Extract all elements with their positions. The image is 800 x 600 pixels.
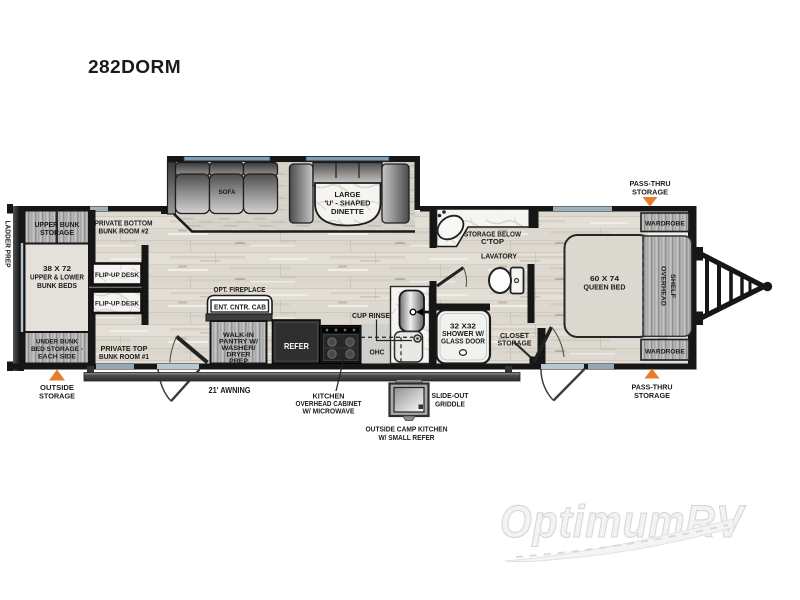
svg-text:UNDER BUNK: UNDER BUNK — [36, 339, 78, 346]
svg-text:SHELF: SHELF — [669, 274, 676, 298]
svg-text:QUEEN BED: QUEEN BED — [584, 283, 627, 292]
svg-text:STORAGE: STORAGE — [634, 391, 670, 400]
svg-text:GLASS DOOR: GLASS DOOR — [441, 339, 485, 346]
svg-text:DINETTE: DINETTE — [331, 207, 364, 216]
svg-text:STORAGE: STORAGE — [39, 392, 75, 401]
svg-text:BUNK ROOM #2: BUNK ROOM #2 — [99, 227, 149, 236]
svg-text:OptimumRV: OptimumRV — [500, 496, 747, 547]
svg-text:GRIDDLE: GRIDDLE — [435, 400, 465, 409]
svg-text:EACH SIDE: EACH SIDE — [38, 354, 76, 361]
svg-text:BUNK ROOM #1: BUNK ROOM #1 — [99, 352, 149, 361]
svg-text:SHOWER W/: SHOWER W/ — [442, 331, 484, 338]
svg-text:CUP RINSE: CUP RINSE — [352, 313, 390, 320]
svg-text:BED STORAGE -: BED STORAGE - — [31, 346, 83, 353]
svg-text:WARDROBE: WARDROBE — [645, 349, 685, 356]
svg-text:OVERHEAD: OVERHEAD — [660, 266, 667, 306]
svg-text:STORAGE: STORAGE — [40, 230, 74, 237]
svg-text:SOFA: SOFA — [219, 189, 236, 196]
svg-text:LADDER PREP: LADDER PREP — [4, 221, 13, 268]
svg-text:32 X32: 32 X32 — [450, 324, 476, 331]
svg-text:W/ SMALL REFER: W/ SMALL REFER — [379, 433, 435, 442]
svg-text:CLOSET: CLOSET — [500, 333, 530, 340]
svg-text:OHC: OHC — [370, 350, 385, 357]
svg-text:BUNK BEDS: BUNK BEDS — [37, 281, 77, 290]
svg-text:OPT. FIREPLACE: OPT. FIREPLACE — [214, 285, 266, 294]
svg-text:WARDROBE: WARDROBE — [645, 221, 685, 228]
svg-text:STORAGE BELOW: STORAGE BELOW — [464, 232, 521, 239]
svg-text:282DORM: 282DORM — [88, 56, 181, 77]
svg-text:LAVATORY: LAVATORY — [481, 254, 517, 261]
svg-text:REFER: REFER — [284, 342, 309, 351]
svg-text:W/ MICROWAVE: W/ MICROWAVE — [303, 407, 355, 416]
svg-text:C'TOP: C'TOP — [481, 239, 504, 246]
svg-text:21' AWNING: 21' AWNING — [209, 386, 251, 395]
svg-text:FLIP-UP DESK: FLIP-UP DESK — [95, 301, 139, 308]
svg-text:FLIP-UP DESK: FLIP-UP DESK — [95, 272, 139, 279]
svg-text:UPPER BUNK: UPPER BUNK — [35, 222, 80, 229]
svg-text:STORAGE: STORAGE — [632, 188, 668, 197]
svg-text:PREP: PREP — [229, 358, 249, 365]
svg-text:ENT. CNTR. CAB: ENT. CNTR. CAB — [214, 305, 266, 312]
